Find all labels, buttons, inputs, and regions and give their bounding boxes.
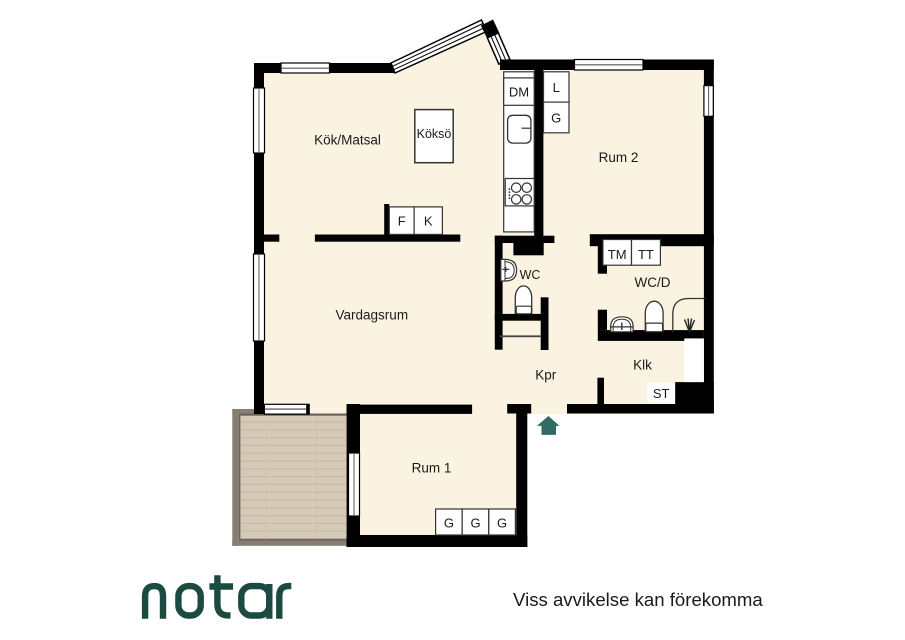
svg-text:Klk: Klk <box>633 358 652 373</box>
svg-text:TT: TT <box>638 247 654 262</box>
svg-text:K: K <box>424 214 433 229</box>
svg-text:Rum 1: Rum 1 <box>412 461 452 476</box>
svg-text:Viss avvikelse kan förekomma: Viss avvikelse kan förekomma <box>513 589 763 610</box>
svg-text:TM: TM <box>608 247 627 262</box>
svg-text:L: L <box>553 80 560 95</box>
svg-text:Vardagsrum: Vardagsrum <box>336 308 409 323</box>
svg-text:WC: WC <box>520 268 541 282</box>
svg-text:F: F <box>398 214 406 229</box>
svg-text:WC/D: WC/D <box>635 275 671 290</box>
svg-text:Köksö: Köksö <box>417 127 452 141</box>
svg-text:Kök/Matsal: Kök/Matsal <box>314 133 381 148</box>
svg-text:G: G <box>497 516 507 531</box>
svg-text:Kpr: Kpr <box>535 368 557 383</box>
svg-text:Rum 2: Rum 2 <box>599 150 639 165</box>
svg-text:ST: ST <box>653 386 670 401</box>
svg-text:DM: DM <box>509 85 529 100</box>
svg-text:G: G <box>470 516 480 531</box>
svg-text:G: G <box>551 111 561 126</box>
svg-text:G: G <box>444 516 454 531</box>
